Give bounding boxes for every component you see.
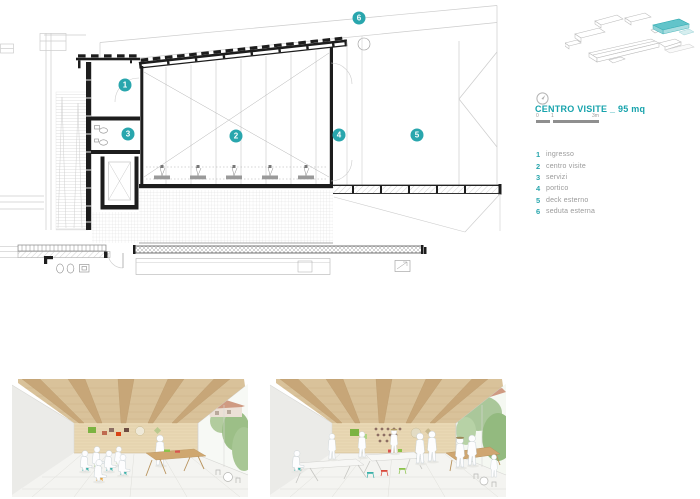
marker-centro-visite: 2 <box>230 130 243 143</box>
entrance-canopy <box>76 54 140 68</box>
detail-circle <box>358 38 370 50</box>
highlighted-building <box>653 19 694 35</box>
legend-item: 1ingresso <box>536 149 646 160</box>
marker-seduta-esterna: 6 <box>353 12 366 25</box>
services-block <box>91 78 140 243</box>
hedge <box>56 92 88 230</box>
presentation-board: 1 2 3 4 5 6 CENTRO VISITE _ <box>0 0 700 499</box>
back-wall <box>74 423 198 453</box>
existing-wall <box>86 62 91 230</box>
scale-segment <box>536 120 550 123</box>
deck <box>333 184 502 232</box>
interior-rendering-left <box>12 379 248 497</box>
interior-rendering-right <box>268 379 508 497</box>
section-drawing <box>0 0 530 310</box>
hall <box>139 47 333 243</box>
marker-servizi: 3 <box>122 128 135 141</box>
portico <box>331 36 362 185</box>
legend-list: 1ingresso 2centro visite 3servizi 4porti… <box>536 149 646 217</box>
plan-strip <box>0 245 427 275</box>
legend-item: 2centro visite <box>536 160 646 171</box>
scale-bar: 0 1 3m <box>536 113 606 125</box>
scale-tick-3m: 3m <box>592 113 599 119</box>
legend-item: 5deck esterno <box>536 195 646 206</box>
marker-ingresso: 1 <box>119 79 132 92</box>
scale-tick-0: 0 <box>536 113 539 119</box>
scale-segment <box>553 120 599 123</box>
site-axonometric-thumbnail <box>565 12 697 68</box>
marker-portico: 4 <box>333 129 346 142</box>
marker-deck-esterno: 5 <box>411 129 424 142</box>
legend-item: 4portico <box>536 183 646 194</box>
legend-item: 3servizi <box>536 172 646 183</box>
legend-item: 6seduta esterna <box>536 206 646 217</box>
scale-tick-1: 1 <box>551 113 554 119</box>
